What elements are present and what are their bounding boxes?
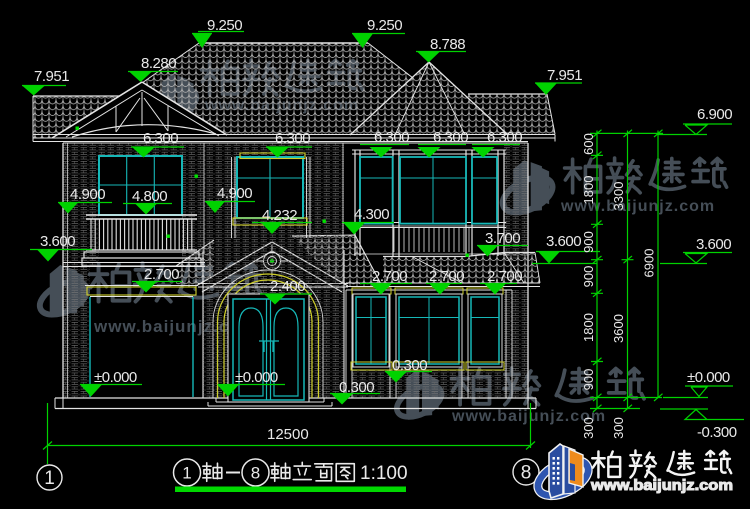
svg-text:7.951: 7.951 (34, 68, 69, 85)
svg-text:1:100: 1:100 (360, 463, 408, 484)
svg-text:2.700: 2.700 (487, 268, 522, 285)
svg-text:8.280: 8.280 (141, 55, 176, 72)
svg-text:4.900: 4.900 (70, 186, 105, 203)
svg-text:1800: 1800 (581, 313, 596, 342)
svg-text:6.300: 6.300 (487, 129, 522, 146)
svg-text:-0.300: -0.300 (697, 424, 737, 441)
svg-text:2.700: 2.700 (144, 266, 179, 283)
svg-text:0.300: 0.300 (339, 379, 374, 396)
svg-text:2.700: 2.700 (372, 268, 407, 285)
svg-text:6.300: 6.300 (433, 129, 468, 146)
svg-text:0.300: 0.300 (392, 357, 427, 374)
svg-text:8.788: 8.788 (430, 36, 465, 53)
svg-text:1800: 1800 (581, 176, 596, 205)
svg-text:6.300: 6.300 (275, 130, 310, 147)
svg-text:12500: 12500 (267, 426, 309, 443)
svg-text:6.900: 6.900 (697, 106, 732, 123)
svg-text:600: 600 (581, 133, 596, 155)
svg-text:4.300: 4.300 (354, 206, 389, 223)
svg-text:2.400: 2.400 (270, 278, 305, 295)
svg-text:8: 8 (251, 464, 260, 483)
svg-text:6900: 6900 (642, 249, 657, 278)
svg-text:6.300: 6.300 (374, 129, 409, 146)
svg-text:4.900: 4.900 (217, 185, 252, 202)
svg-text:6.300: 6.300 (143, 130, 178, 147)
svg-text:3300: 3300 (611, 182, 626, 211)
svg-text:4.232: 4.232 (262, 207, 297, 224)
svg-text:300: 300 (611, 417, 626, 439)
svg-text:4.800: 4.800 (132, 188, 167, 205)
svg-text:±0.000: ±0.000 (94, 369, 137, 386)
svg-text:±0.000: ±0.000 (687, 369, 730, 386)
svg-text:1: 1 (182, 464, 191, 483)
svg-text:1: 1 (44, 468, 55, 489)
svg-text:900: 900 (581, 266, 596, 288)
svg-text:9.250: 9.250 (367, 17, 402, 34)
svg-text:8: 8 (521, 463, 532, 484)
svg-text:9.250: 9.250 (207, 17, 242, 34)
svg-text:900: 900 (581, 369, 596, 391)
svg-text:www.baijunjz.com: www.baijunjz.com (590, 477, 733, 494)
svg-text:3600: 3600 (611, 314, 626, 343)
svg-text:3.700: 3.700 (485, 230, 520, 247)
svg-text:3.600: 3.600 (40, 233, 75, 250)
svg-text:±0.000: ±0.000 (235, 369, 278, 386)
svg-text:7.951: 7.951 (547, 67, 582, 84)
svg-text:3.600: 3.600 (696, 236, 731, 253)
svg-text:2.700: 2.700 (429, 268, 464, 285)
svg-text:300: 300 (581, 417, 596, 439)
svg-text:3.600: 3.600 (546, 233, 581, 250)
svg-text:900: 900 (581, 231, 596, 253)
